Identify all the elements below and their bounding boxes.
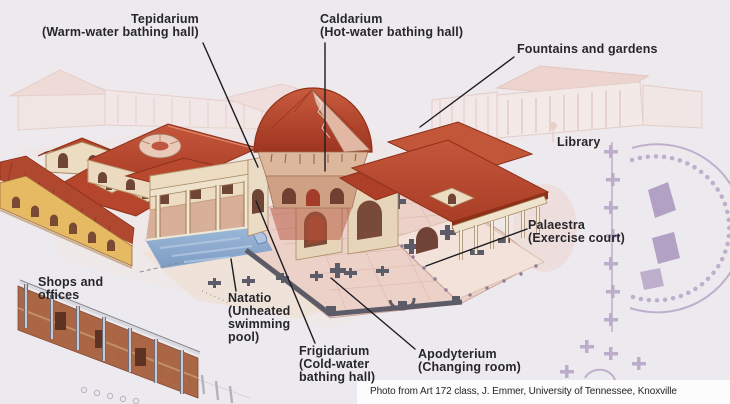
label-frigidarium-sub: (Cold-water bathing hall): [299, 358, 375, 384]
label-caldarium-sub: (Hot-water bathing hall): [320, 26, 463, 39]
label-fountains: Fountains and gardens: [517, 43, 658, 56]
baths-diagram: Tepidarium (Warm-water bathing hall) Cal…: [0, 0, 730, 404]
label-library: Library: [557, 136, 600, 149]
label-tepidarium-sub: (Warm-water bathing hall): [42, 26, 199, 39]
side-rotunda: [139, 134, 181, 158]
label-palaestra-sub: (Exercise court): [528, 232, 625, 245]
label-natatio-sub: (Unheated swimming pool): [228, 305, 290, 345]
label-apodyterium-sub: (Changing room): [418, 361, 521, 374]
photo-credit: Photo from Art 172 class, J. Emmer, Univ…: [370, 385, 677, 399]
label-shops: Shops and offices: [38, 276, 103, 302]
